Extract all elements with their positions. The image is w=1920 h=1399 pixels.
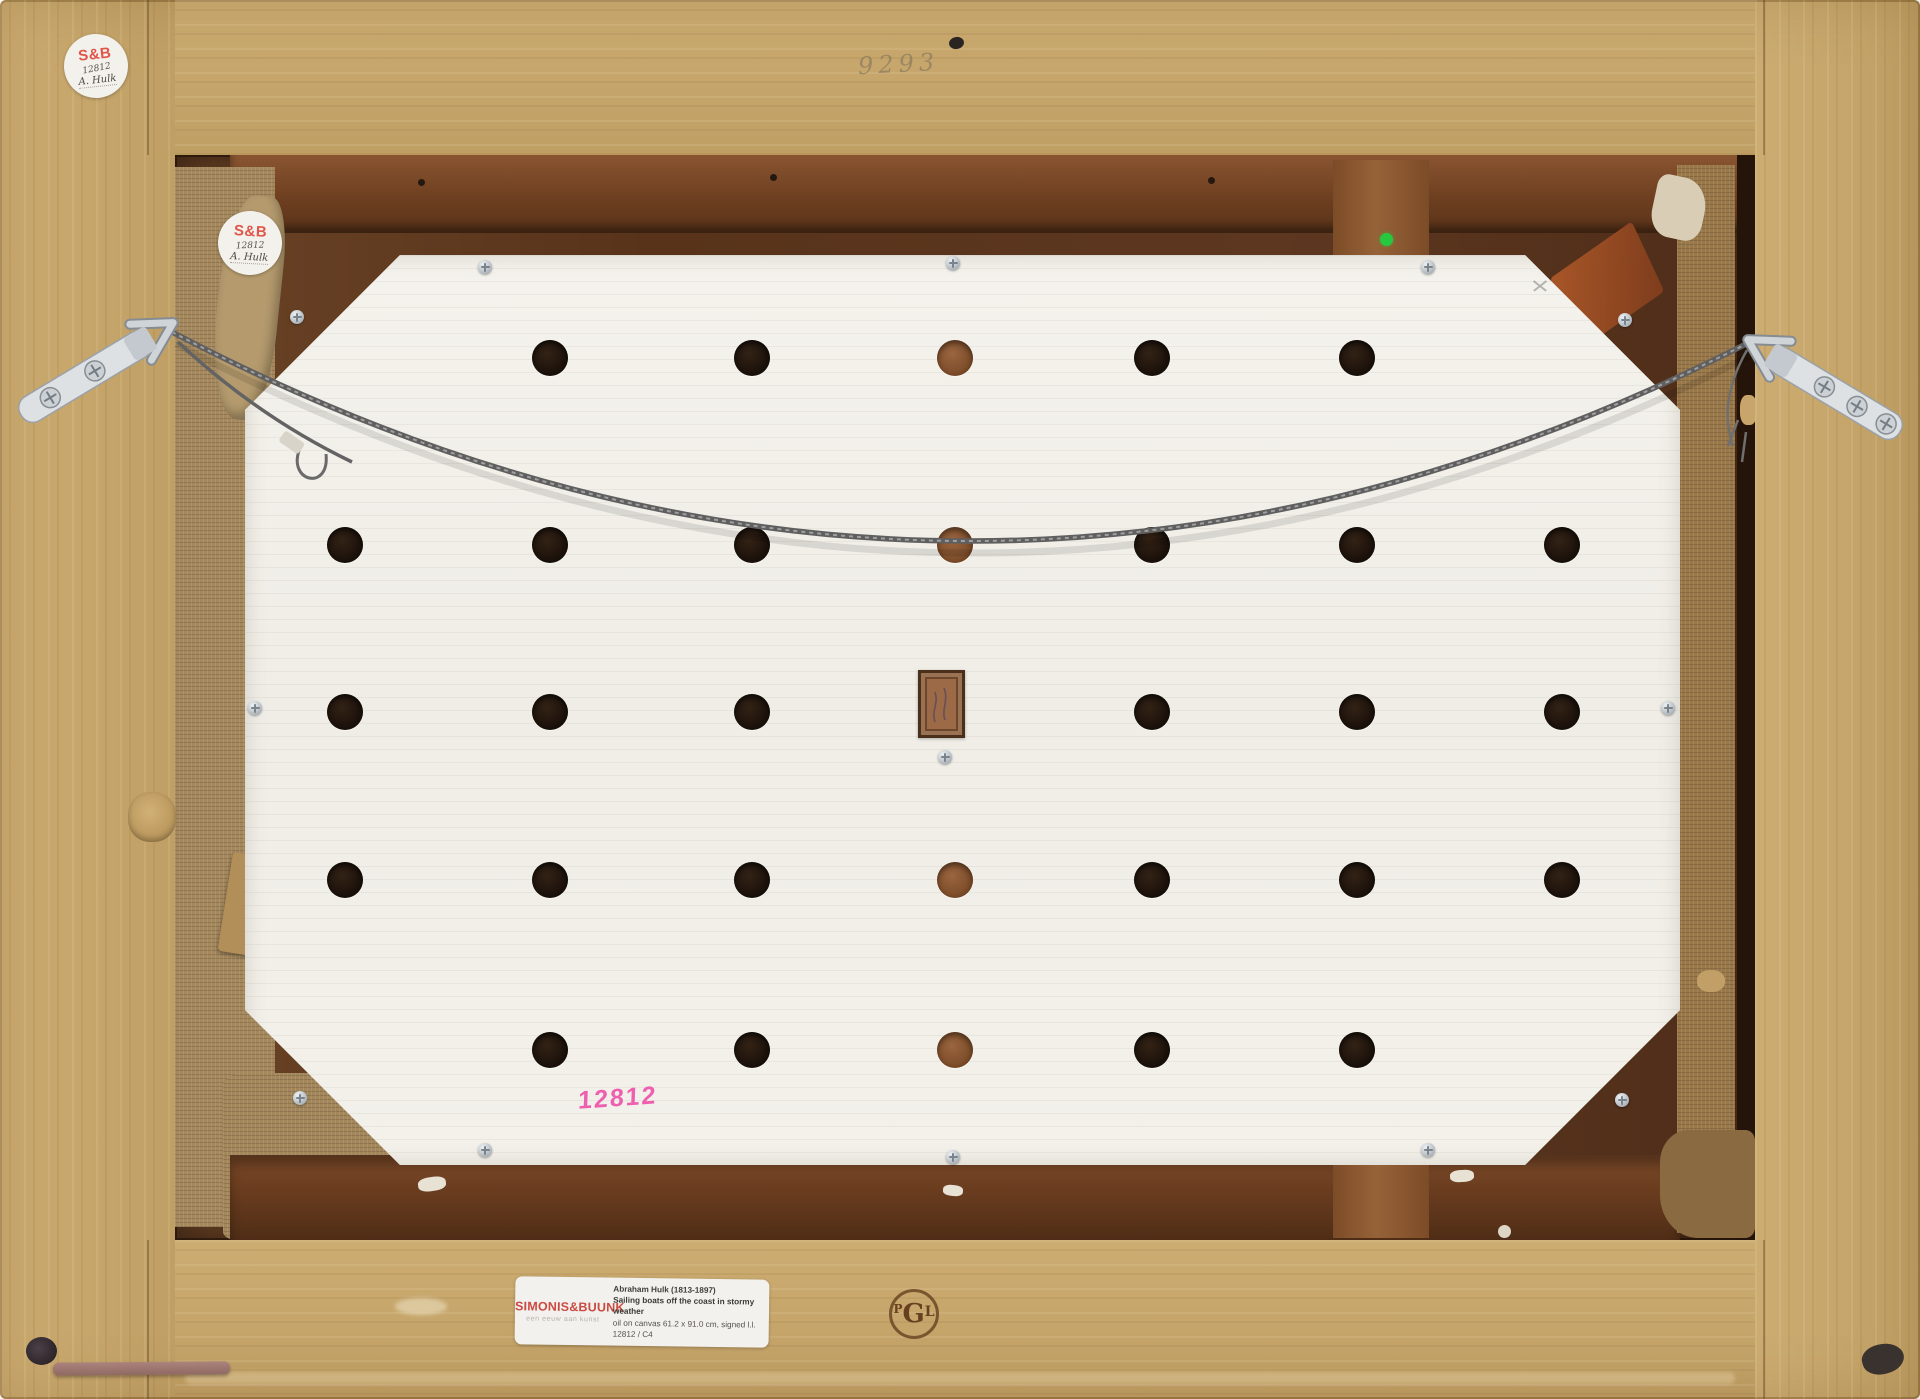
sticker-brand: S&B [234, 222, 268, 241]
green-dot-sticker [1380, 233, 1393, 246]
canvas-fold-corner [1660, 1130, 1755, 1238]
white-dot [1498, 1225, 1511, 1238]
frame-joint-seam [147, 1240, 149, 1399]
frame-joint-seam [147, 0, 149, 155]
frame-joint-seam [1763, 1240, 1765, 1399]
pgl-brand-stamp: P G L [889, 1289, 939, 1339]
artwork-inventory: 12812 / C4 [613, 1329, 759, 1342]
dealer-name: SIMONIS&BUUNK [515, 1299, 611, 1314]
frame-bar-left [0, 0, 175, 1399]
dark-knot-mark [26, 1337, 57, 1365]
paint-scuff [395, 1298, 447, 1315]
stamp-letter: G [902, 1301, 924, 1327]
stamp-letter: P [893, 1302, 902, 1316]
nail-head [770, 174, 777, 181]
sticker-number: 12812 [235, 240, 264, 251]
wooden-peg [1740, 395, 1755, 425]
pencil-inscription: 9293 [857, 48, 939, 80]
artwork-title: Sailing boats off the coast in stormy we… [613, 1295, 759, 1320]
dealer-tagline: een eeuw aan kunst [515, 1315, 611, 1323]
frame-dowel [128, 792, 176, 842]
frame-bar-right [1755, 0, 1920, 1399]
sticker-artist: A. Hulk [230, 250, 269, 264]
dealer-logo: SIMONIS&BUUNK een eeuw aan kunst [515, 1299, 611, 1323]
dealer-info: Abraham Hulk (1813-1897) Sailing boats o… [611, 1276, 770, 1349]
frame-bevel-highlight [185, 1372, 1735, 1384]
frame-joint-seam [1763, 0, 1765, 155]
nail-head [1208, 177, 1215, 184]
stretcher-bottom-bar [230, 1155, 1680, 1240]
canvas-burlap-right [1677, 165, 1735, 1233]
stretcher-top-bar [230, 155, 1745, 233]
dealer-label: SIMONIS&BUUNK een eeuw aan kunst Abraham… [515, 1276, 770, 1348]
stamp-letter: L [925, 1304, 935, 1320]
wooden-stick [53, 1361, 230, 1375]
wooden-peg [1697, 970, 1725, 992]
backing-board [245, 255, 1680, 1165]
frame-gap-shadow [1737, 155, 1755, 1240]
nail-head [418, 179, 425, 186]
frame-bar-top [175, 0, 1755, 155]
picture-frame-back: 12812 S&B 12812 A. Hulk S&B 12812 A. Hul… [0, 0, 1920, 1399]
